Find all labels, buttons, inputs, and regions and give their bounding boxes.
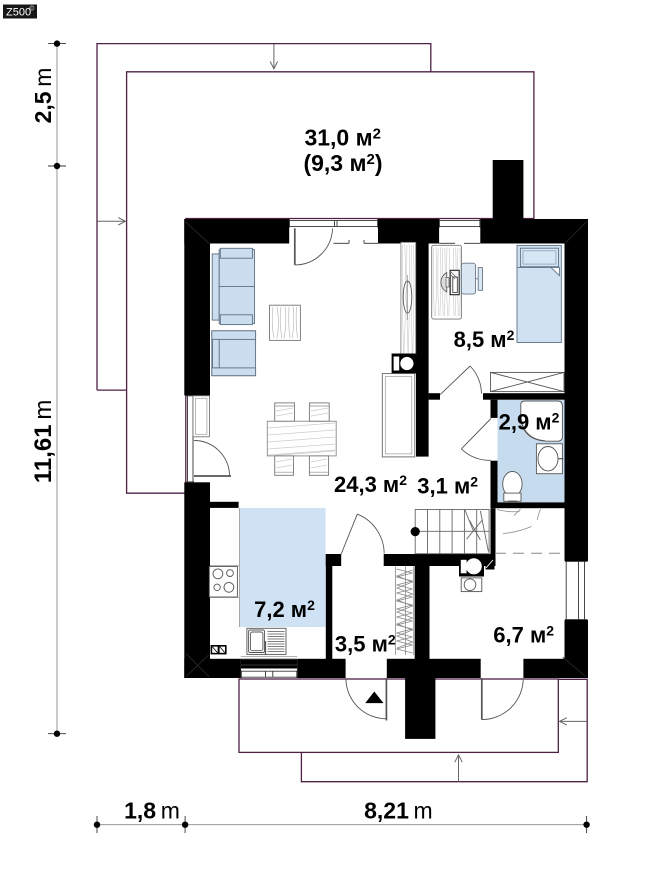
svg-text:8,21 m: 8,21 m [364, 798, 433, 824]
svg-text:Z500: Z500 [6, 7, 31, 19]
svg-text:2,9 м2: 2,9 м2 [499, 410, 560, 435]
svg-text:11,61 m: 11,61 m [30, 400, 57, 484]
svg-text:©: © [30, 5, 35, 13]
svg-text:2,5 m: 2,5 m [30, 68, 56, 124]
svg-text:3,1 м2: 3,1 м2 [417, 474, 478, 499]
svg-text:31,0 м2: 31,0 м2 [304, 125, 381, 151]
svg-text:3,5 м2: 3,5 м2 [335, 632, 396, 657]
svg-text:24,3 м2: 24,3 м2 [334, 472, 407, 497]
svg-text:1,8 m: 1,8 m [124, 798, 180, 824]
svg-text:6,7 м2: 6,7 м2 [493, 623, 554, 648]
svg-text:7,2 м2: 7,2 м2 [254, 597, 315, 622]
svg-text:8,5 м2: 8,5 м2 [454, 327, 515, 352]
